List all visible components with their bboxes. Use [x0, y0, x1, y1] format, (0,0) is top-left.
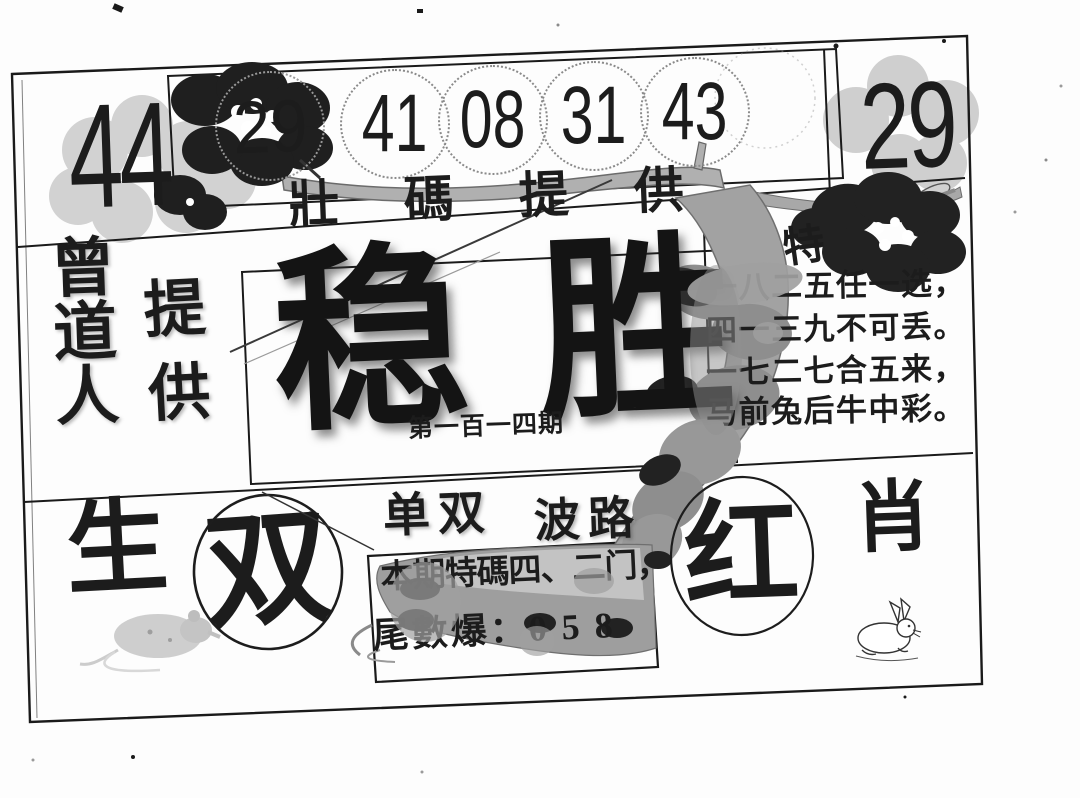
- parity-answer-circle: [190, 491, 346, 653]
- lottery-tip-sheet-scan: 44 29 41 08 31 43 29 壯碼提供 特 曾道人 提供 稳胜 第一…: [0, 0, 1080, 798]
- scan-artwork-overlay: [0, 0, 1080, 798]
- branch-occlusion-patches: [389, 256, 805, 656]
- color-answer-circle: [668, 475, 815, 638]
- pointer-line: [262, 492, 374, 550]
